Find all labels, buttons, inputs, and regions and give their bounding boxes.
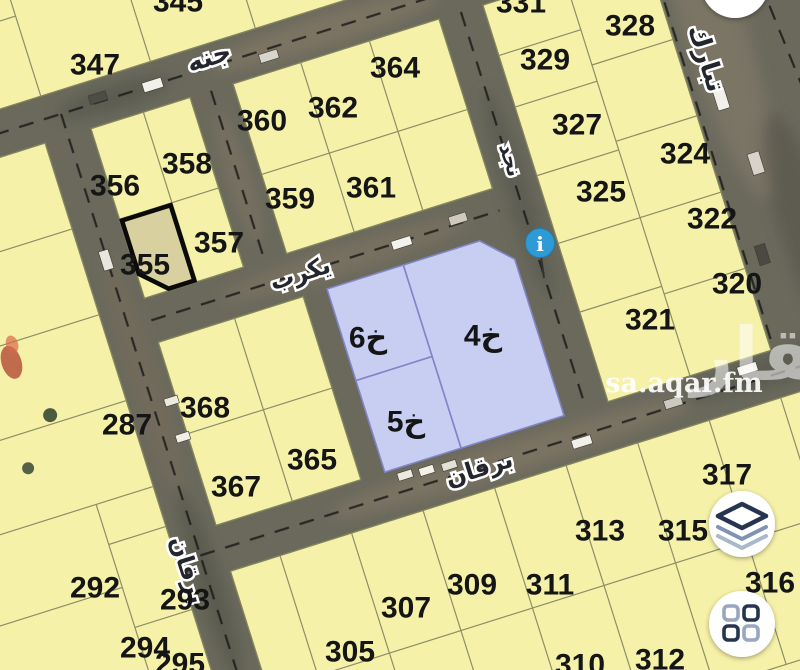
parcel-label-خ4[interactable]: خ4 [464, 320, 503, 353]
parcel-label-292[interactable]: 292 [70, 572, 120, 605]
parcel-label-356[interactable]: 356 [90, 170, 140, 203]
parcel-label-317[interactable]: 317 [702, 459, 752, 492]
parcel-label-305[interactable]: 305 [325, 636, 375, 669]
parcel-map: جنهيكرببرقانبرقاننجدتبارك 34734535635835… [0, 0, 800, 670]
parcel-label-329[interactable]: 329 [520, 44, 570, 77]
parcel-label-293[interactable]: 293 [160, 584, 210, 617]
parcel-label-362[interactable]: 362 [308, 92, 358, 125]
layers-button[interactable] [709, 491, 775, 557]
parcel-label-321[interactable]: 321 [625, 304, 675, 337]
parcel-label-358[interactable]: 358 [162, 148, 212, 181]
parcel-label-322[interactable]: 322 [687, 203, 737, 236]
parcel-label-311[interactable]: 311 [526, 569, 574, 602]
parcel-label-315[interactable]: 315 [658, 515, 708, 548]
parcel-label-345[interactable]: 345 [153, 0, 203, 19]
parcel-label-361[interactable]: 361 [346, 172, 396, 205]
map-canvas[interactable]: جنهيكرببرقانبرقاننجدتبارك 34734535635835… [0, 0, 800, 670]
parcel-label-324[interactable]: 324 [660, 138, 710, 171]
parcel-label-327[interactable]: 327 [552, 109, 602, 142]
parcel-label-295[interactable]: 295 [155, 648, 205, 670]
parcel-label-خ5[interactable]: خ5 [387, 406, 426, 439]
parcel-label-359[interactable]: 359 [265, 183, 315, 216]
parcel-label-368[interactable]: 368 [180, 392, 230, 425]
parcel-label-360[interactable]: 360 [237, 105, 287, 138]
parcel-label-331[interactable]: 331 [496, 0, 546, 20]
rotated-map-grid: جنهيكرببرقانبرقاننجدتبارك [0, 0, 800, 670]
parcel-label-364[interactable]: 364 [370, 52, 420, 85]
parcel-label-347[interactable]: 347 [70, 49, 120, 82]
parcel-label-خ6[interactable]: خ6 [349, 322, 388, 355]
parcel-label-310[interactable]: 310 [555, 649, 605, 670]
grid-button[interactable] [709, 591, 775, 657]
parcel-label-355[interactable]: 355 [120, 249, 170, 282]
parcel-label-307[interactable]: 307 [381, 592, 431, 625]
parcel-label-365[interactable]: 365 [287, 444, 337, 477]
parcel-label-367[interactable]: 367 [211, 471, 261, 504]
parcel-label-325[interactable]: 325 [576, 176, 626, 209]
parcel-label-320[interactable]: 320 [712, 268, 762, 301]
parcel-label-287[interactable]: 287 [102, 409, 152, 442]
parcel-label-309[interactable]: 309 [447, 569, 497, 602]
parcel-label-313[interactable]: 313 [575, 515, 625, 548]
parcel-label-328[interactable]: 328 [605, 10, 655, 43]
info-icon: i [536, 232, 544, 256]
watermark-site: sa.aqar.fm [605, 368, 762, 399]
parcel-label-312[interactable]: 312 [635, 644, 685, 670]
parcel-label-357[interactable]: 357 [194, 227, 244, 260]
